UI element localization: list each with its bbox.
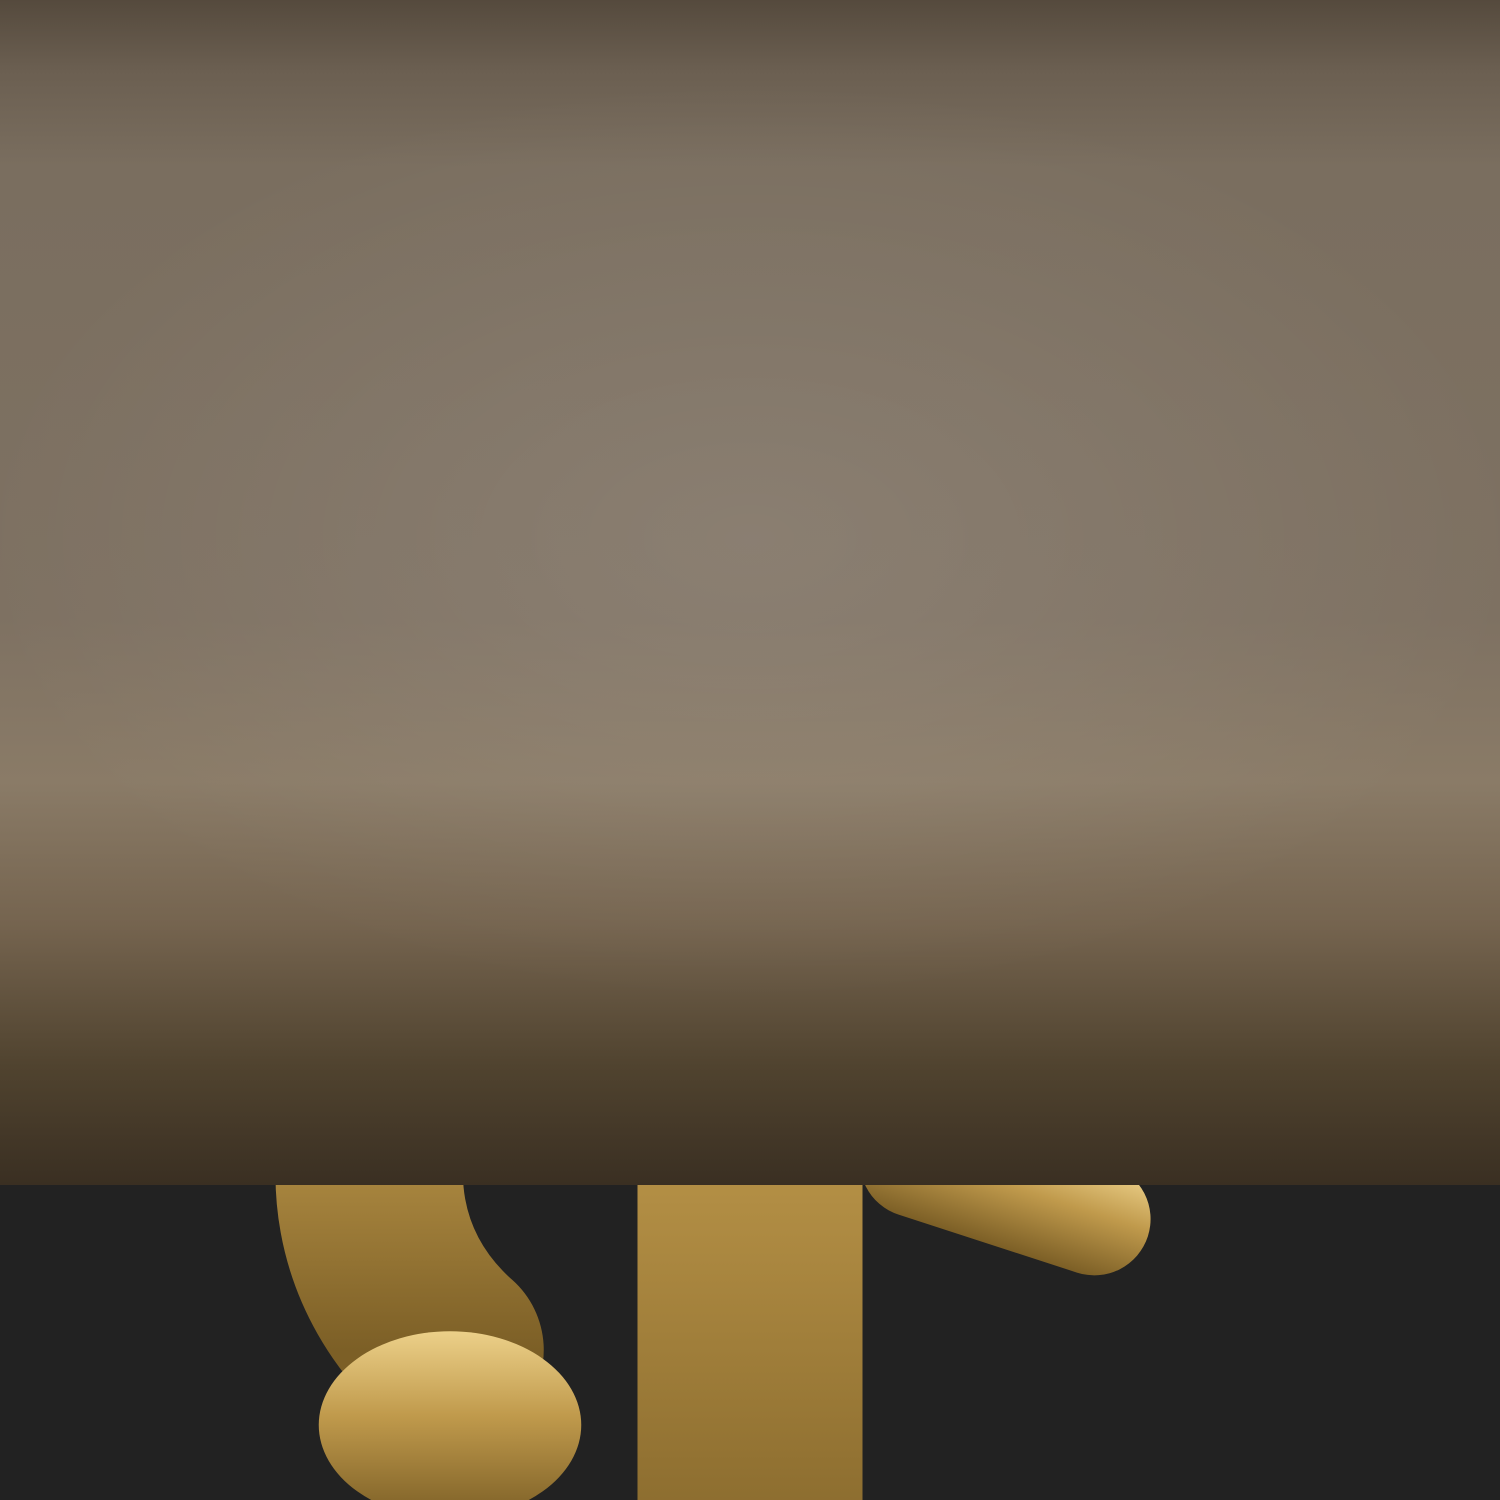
vanity-counter (0, 1040, 1500, 1185)
product-image: WOMAN (0, 0, 1500, 1500)
bathroom-wall (0, 0, 1500, 1185)
